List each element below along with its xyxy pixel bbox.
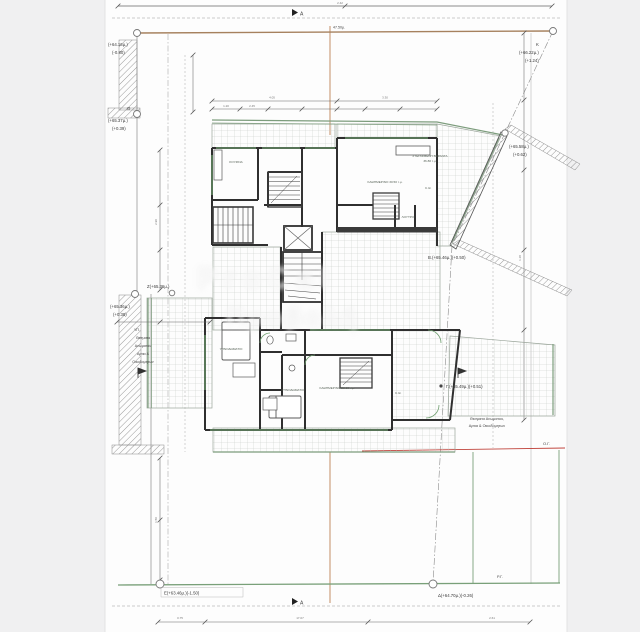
- svg-text:(+0.38): (+0.38): [113, 312, 127, 317]
- svg-text:Θεσματα: Θεσματα: [136, 336, 150, 340]
- svg-text:Οικοδομητων: Οικοδομητων: [132, 360, 154, 364]
- svg-text:Ζ(+65.36μ.): Ζ(+65.36μ.): [147, 284, 170, 289]
- desk: [233, 363, 255, 377]
- svg-text:Δ(+64.70μ.)(-0.26): Δ(+64.70μ.)(-0.26): [438, 593, 474, 598]
- svg-text:ΣΤΕΓΑΣΜΕΝΗ ΒΕΡΑΝΤΑ: ΣΤΕΓΑΣΜΕΝΗ ΒΕΡΑΝΤΑ: [412, 154, 448, 158]
- svg-text:1.20: 1.20: [223, 104, 229, 108]
- floor-plan-drawing: 2.42 A A 47.50μ. Ο.Γ. Ρ.Γ.: [0, 0, 640, 632]
- svg-text:2.61: 2.61: [489, 616, 495, 620]
- svg-text:C.Θ.: C.Θ.: [425, 186, 432, 190]
- svg-text:ΚΟΥΖΙΝΑ: ΚΟΥΖΙΝΑ: [229, 160, 243, 164]
- svg-text:(-0.80): (-0.80): [112, 50, 125, 55]
- marker-z: [132, 291, 139, 298]
- svg-text:Θεσματα Ανωματου,: Θεσματα Ανωματου,: [470, 417, 504, 421]
- svg-text:Αρτια &: Αρτια &: [137, 352, 150, 356]
- shower: [263, 398, 277, 410]
- svg-text:(+64.16μ.): (+64.16μ.): [108, 42, 128, 47]
- marker-corner-a: [134, 30, 141, 37]
- marker-k: [550, 28, 557, 35]
- rg-label: Ρ.Γ.: [497, 575, 503, 579]
- svg-text:(+65.36μ.): (+65.36μ.): [110, 304, 130, 309]
- svg-text:1.18: 1.18: [518, 255, 522, 261]
- svg-text:C.Θ.: C.Θ.: [395, 391, 402, 395]
- sink: [289, 365, 295, 371]
- svg-text:(+66.22μ.): (+66.22μ.): [519, 50, 539, 55]
- svg-text:Αρτια & Οικοδομητων: Αρτια & Οικοδομητων: [469, 424, 506, 428]
- svg-text:17.07: 17.07: [296, 616, 304, 620]
- svg-text:ΚΑΘΗΜΕΡΙΝΟ 28.60 τ.μ.: ΚΑΘΗΜΕΡΙΝΟ 28.60 τ.μ.: [319, 386, 354, 390]
- svg-text:4.05: 4.05: [269, 96, 275, 100]
- marker-slant-corner: [502, 130, 508, 136]
- svg-text:ΥΠΝΟΔΩΜΑΤΙΟ: ΥΠΝΟΔΩΜΑΤΙΟ: [282, 388, 305, 392]
- kitchen-counter: [214, 150, 222, 180]
- svg-text:(+1.24): (+1.24): [525, 58, 539, 63]
- bed-1: [222, 322, 250, 360]
- svg-text:ΥΠΝΟΔΩΜΑΤΙΟ: ΥΠΝΟΔΩΜΑΤΙΟ: [220, 347, 243, 351]
- svg-text:Ε(+63.46μ.)(-1.50): Ε(+63.46μ.)(-1.50): [164, 591, 200, 596]
- svg-text:0.75: 0.75: [177, 616, 183, 620]
- svg-text:(+0.62): (+0.62): [513, 152, 527, 157]
- marker-gamma: [439, 384, 442, 387]
- dim-top: 2.42: [337, 1, 343, 5]
- svg-text:ΥΠ.: ΥΠ.: [134, 328, 140, 332]
- svg-text:3.30: 3.30: [382, 96, 388, 100]
- sink-counter: [286, 334, 296, 341]
- toilet: [267, 336, 273, 344]
- svg-text:Ανωματου: Ανωματου: [135, 344, 151, 348]
- svg-text:Κ: Κ: [536, 42, 539, 47]
- svg-text:(+65.58μ.): (+65.58μ.): [509, 144, 529, 149]
- svg-text:2.45: 2.45: [249, 104, 255, 108]
- svg-text:(+0.39): (+0.39): [112, 126, 126, 131]
- boundary-dim-label: 47.50μ.: [333, 26, 345, 30]
- marker-e: [156, 580, 164, 588]
- svg-text:1.50: 1.50: [154, 517, 158, 523]
- svg-text:(+65.37μ.): (+65.37μ.): [108, 118, 128, 123]
- marker-beta-label: Β.(+65.46μ.)(+0.50): [428, 255, 466, 260]
- marker-delta: [429, 580, 437, 588]
- og-label: Ο.Γ.: [543, 441, 550, 446]
- svg-text:36.80 τ.μ.: 36.80 τ.μ.: [423, 159, 436, 163]
- svg-text:2.90: 2.90: [154, 219, 158, 225]
- svg-text:ΚΑΘΗΜΕΡΙΝΟ 30.50 τ.μ.: ΚΑΘΗΜΕΡΙΝΟ 30.50 τ.μ.: [367, 180, 402, 184]
- svg-text:Γ.(+65.49μ.)(+0.51): Γ.(+65.49μ.)(+0.51): [446, 384, 483, 389]
- marker-theta: [134, 111, 141, 118]
- floor-plan-screenshot: 2.42 A A 47.50μ. Ο.Γ. Ρ.Γ.: [0, 0, 640, 632]
- svg-text:ΛΟΥΤΡΟ: ΛΟΥΤΡΟ: [402, 215, 415, 219]
